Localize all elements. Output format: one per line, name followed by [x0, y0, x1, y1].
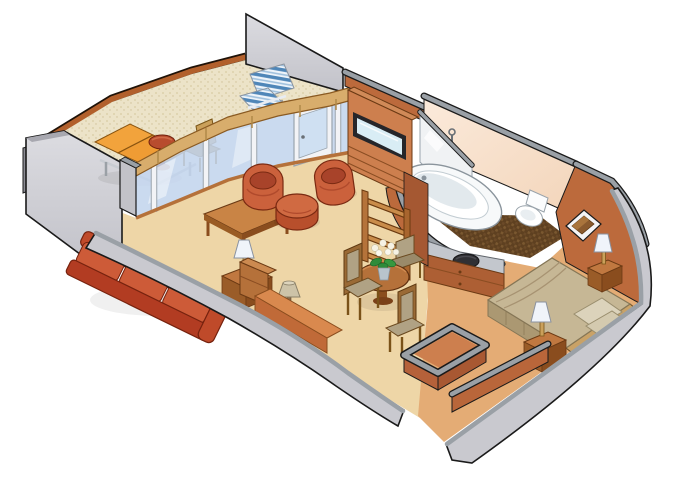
ottoman-top — [276, 194, 318, 218]
bathtub-faucet — [422, 176, 427, 181]
barrel-chair-left-seat — [250, 172, 276, 189]
suite-floor-plan-canvas — [0, 0, 680, 486]
suite-floor-plan — [0, 0, 680, 486]
vase — [378, 268, 390, 280]
ottoman — [274, 194, 320, 230]
door-handle — [301, 135, 305, 139]
wall-step-face — [120, 160, 136, 216]
shelf-rail-left — [362, 190, 368, 262]
